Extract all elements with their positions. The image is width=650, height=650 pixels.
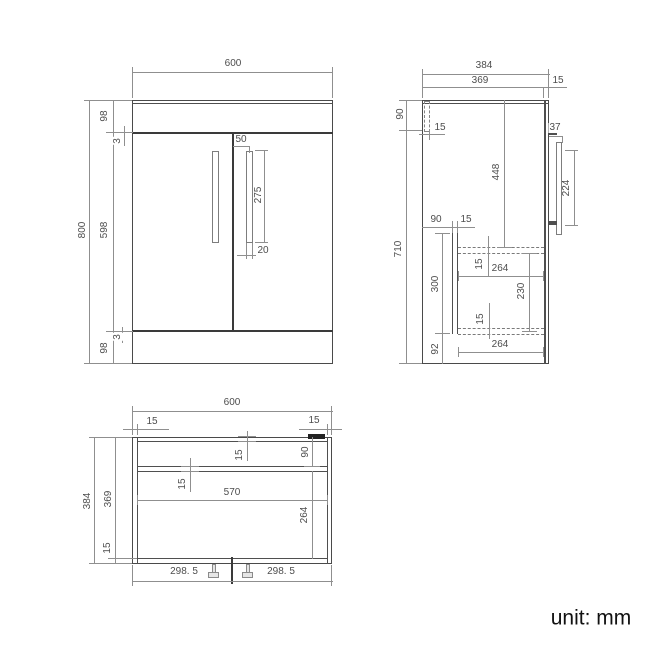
dim-line bbox=[312, 471, 313, 559]
dim-tick bbox=[458, 271, 459, 281]
dim-tick bbox=[543, 347, 544, 357]
dim-line bbox=[529, 253, 530, 332]
dim-tick bbox=[457, 221, 458, 233]
dim-ext bbox=[84, 100, 132, 101]
dim-tick bbox=[238, 441, 256, 442]
dim-line bbox=[458, 276, 544, 277]
dim-line bbox=[132, 411, 333, 412]
dim-tick bbox=[106, 331, 133, 332]
dim-line bbox=[123, 429, 169, 430]
dim-label-gap-bottom: 3 bbox=[113, 333, 123, 341]
dim-label-back-thickness: 15 bbox=[235, 448, 245, 461]
dim-line bbox=[115, 437, 116, 564]
dim-label-shelf-thickness-bottom: 15 bbox=[476, 312, 486, 325]
dim-ext bbox=[132, 67, 133, 98]
dim-tick bbox=[132, 424, 133, 435]
dim-tick bbox=[565, 150, 578, 151]
dim-label-handle-length: 275 bbox=[254, 186, 264, 205]
dim-line bbox=[422, 87, 567, 88]
dim-tick bbox=[181, 466, 199, 467]
dim-line bbox=[132, 581, 333, 582]
dim-line bbox=[89, 100, 90, 364]
dim-label-base-height: 92 bbox=[431, 342, 441, 355]
dim-label-inner-depth: 369 bbox=[104, 490, 114, 509]
dim-ext bbox=[548, 69, 549, 98]
plan-wall-bracket bbox=[308, 434, 325, 439]
dim-label-panel-thickness: 15 bbox=[459, 215, 472, 225]
dim-label-open-depth: 264 bbox=[300, 506, 310, 525]
dim-label-handle-standoff: 37 bbox=[548, 123, 561, 133]
dim-tick bbox=[255, 150, 268, 151]
dim-line bbox=[264, 151, 265, 243]
dim-label-gap-top: 3 bbox=[113, 137, 123, 145]
plan-back-panel-line bbox=[137, 441, 328, 442]
dim-ext bbox=[488, 236, 489, 276]
dim-label-shelf-depth-top: 264 bbox=[491, 264, 510, 274]
dim-tick bbox=[246, 243, 247, 259]
dim-tick bbox=[238, 436, 256, 437]
dim-tick bbox=[106, 132, 133, 133]
dim-ext bbox=[331, 565, 332, 586]
dim-line bbox=[419, 134, 445, 135]
dim-label-lower-section: 300 bbox=[431, 275, 441, 294]
dim-label-front-thickness: 15 bbox=[103, 541, 113, 554]
dim-tick bbox=[255, 242, 268, 243]
dim-ext bbox=[332, 67, 333, 98]
dim-label-half-right: 298. 5 bbox=[266, 567, 296, 577]
dim-label-door-height: 598 bbox=[100, 221, 110, 240]
dim-line bbox=[233, 146, 250, 147]
dim-tick bbox=[327, 424, 328, 435]
front-door-divider-line bbox=[232, 134, 234, 331]
dim-tick bbox=[249, 146, 250, 153]
dim-ext bbox=[399, 363, 422, 364]
dim-label-upper-interior: 448 bbox=[492, 163, 502, 182]
side-partition-line bbox=[452, 233, 453, 334]
dim-tick bbox=[522, 253, 537, 254]
dim-label-rail-depth: 90 bbox=[301, 445, 311, 458]
plan-rail-inner-line bbox=[137, 471, 328, 472]
dim-line bbox=[549, 136, 563, 137]
side-top-edge-line bbox=[422, 103, 549, 104]
unit-note: unit: mm bbox=[551, 608, 632, 629]
front-left-door-handle bbox=[212, 151, 219, 243]
dim-label-door-thickness: 15 bbox=[551, 76, 564, 86]
plan-left-handle-bar bbox=[208, 572, 219, 578]
dim-line bbox=[137, 500, 328, 501]
dim-ext bbox=[190, 458, 191, 492]
dim-label-recess-depth: 90 bbox=[429, 215, 442, 225]
dim-label-plan-width: 600 bbox=[223, 398, 242, 408]
dim-line bbox=[574, 151, 575, 226]
dim-tick bbox=[522, 331, 537, 332]
dim-label-inner-width: 570 bbox=[223, 488, 242, 498]
dim-label-plan-depth: 384 bbox=[83, 492, 93, 511]
dim-ext bbox=[489, 303, 490, 339]
dim-tick bbox=[331, 424, 332, 435]
dim-label-handle-offset: 50 bbox=[234, 135, 247, 145]
dim-tick bbox=[304, 466, 320, 467]
dim-tick bbox=[429, 129, 430, 140]
dim-label-carcass-height: 710 bbox=[394, 240, 404, 259]
front-top-edge-line bbox=[132, 103, 333, 104]
dim-label-rail-thickness: 15 bbox=[433, 123, 446, 133]
dim-label-shelf-gap: 230 bbox=[517, 282, 527, 301]
dim-tick bbox=[435, 233, 450, 234]
dim-tick bbox=[181, 471, 199, 472]
dim-label-shelf-depth-bottom: 264 bbox=[491, 340, 510, 350]
side-hanging-rail-dashed bbox=[424, 101, 430, 132]
dim-tick bbox=[137, 424, 138, 435]
dim-line bbox=[422, 227, 475, 228]
dim-label-body-depth: 369 bbox=[471, 76, 490, 86]
dim-label-depth: 384 bbox=[475, 61, 494, 71]
dim-line bbox=[299, 429, 342, 430]
front-right-door-handle bbox=[246, 151, 253, 243]
dim-tick bbox=[458, 347, 459, 357]
dim-line bbox=[406, 131, 407, 364]
dim-tick bbox=[137, 495, 138, 505]
dim-label-front-width: 600 bbox=[224, 59, 243, 69]
dim-label-handle-centres: 224 bbox=[562, 179, 572, 198]
dim-label-rail-height: 90 bbox=[396, 107, 406, 120]
dim-tick bbox=[252, 243, 253, 259]
dim-tick bbox=[565, 225, 578, 226]
dim-label-half-left: 298. 5 bbox=[169, 567, 199, 577]
plan-rail-front-line bbox=[137, 466, 328, 467]
dim-line bbox=[442, 334, 443, 364]
dim-tick bbox=[327, 495, 328, 505]
dim-ext bbox=[399, 130, 422, 131]
dim-label-side-left: 15 bbox=[145, 417, 158, 427]
dim-tick bbox=[452, 221, 453, 233]
side-handle-stem-bottom bbox=[549, 221, 557, 225]
dim-ext bbox=[89, 437, 132, 438]
dim-line bbox=[406, 100, 407, 131]
dim-label-rail-thickness-plan: 15 bbox=[178, 477, 188, 490]
dim-label-plinth: 98 bbox=[100, 341, 110, 354]
dim-ext bbox=[84, 363, 132, 364]
dim-tick bbox=[543, 271, 544, 281]
dim-label-front-height: 800 bbox=[78, 221, 88, 240]
dim-ext bbox=[422, 69, 423, 98]
dim-label-top-rail: 98 bbox=[100, 109, 110, 122]
dim-line bbox=[132, 72, 333, 73]
vanity-dimension-drawing: 600 800 98 3 598 3 98 50 275 20 bbox=[0, 0, 650, 650]
dim-tick bbox=[562, 136, 563, 143]
dim-line bbox=[458, 352, 544, 353]
dim-line bbox=[94, 437, 95, 564]
plan-door-divider-tick bbox=[231, 557, 233, 584]
side-door-face-line bbox=[544, 100, 546, 364]
dim-tick bbox=[497, 247, 512, 248]
dim-label-shelf-thickness-top: 15 bbox=[475, 257, 485, 270]
dim-ext bbox=[132, 565, 133, 586]
dim-tick bbox=[108, 558, 137, 559]
dim-ext bbox=[89, 563, 132, 564]
dim-tick bbox=[124, 126, 125, 146]
plan-right-handle-bar bbox=[242, 572, 253, 578]
dim-line bbox=[442, 233, 443, 334]
dim-label-handle-width: 20 bbox=[256, 246, 269, 256]
dim-ext bbox=[399, 100, 422, 101]
dim-line bbox=[504, 100, 505, 248]
dim-line bbox=[312, 437, 313, 467]
dim-ext bbox=[543, 87, 544, 98]
dim-label-side-right: 15 bbox=[307, 416, 320, 426]
